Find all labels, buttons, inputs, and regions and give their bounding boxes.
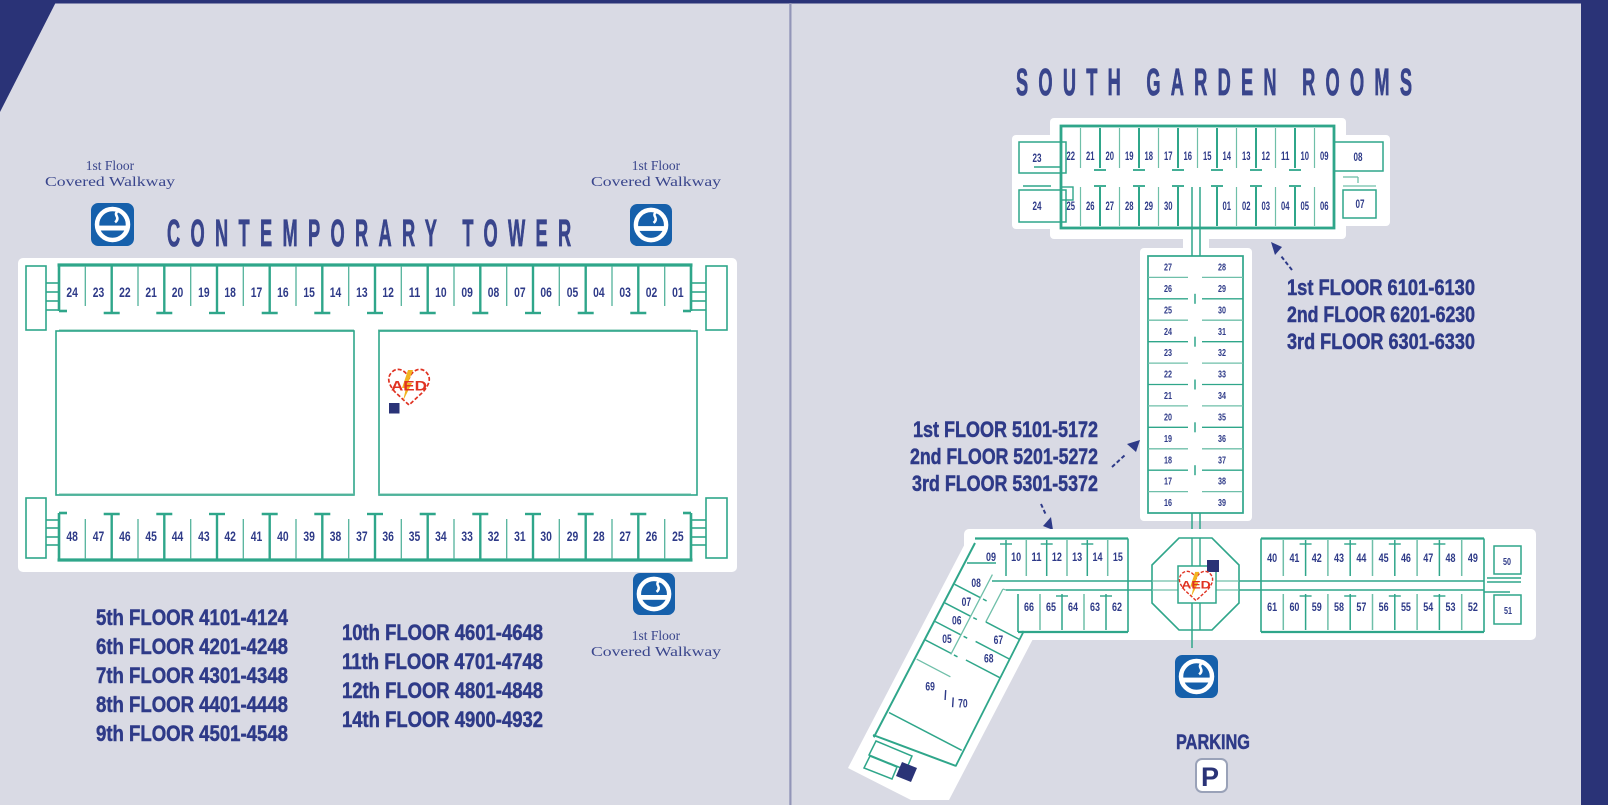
svg-text:52: 52 (1468, 600, 1478, 614)
svg-text:18: 18 (1145, 149, 1154, 163)
svg-text:06: 06 (952, 615, 962, 627)
svg-text:25: 25 (1067, 199, 1076, 213)
svg-text:08: 08 (1354, 150, 1363, 164)
svg-text:63: 63 (1090, 600, 1100, 614)
svg-text:18: 18 (1164, 454, 1172, 466)
svg-text:2nd FLOOR 6201-6230: 2nd FLOOR 6201-6230 (1287, 302, 1475, 327)
svg-text:3rd FLOOR 5301-5372: 3rd FLOOR 5301-5372 (912, 471, 1098, 496)
svg-text:22: 22 (1164, 369, 1172, 381)
svg-text:17: 17 (1164, 149, 1173, 163)
svg-text:12th FLOOR 4801-4848: 12th FLOOR 4801-4848 (342, 678, 543, 703)
svg-text:16: 16 (277, 285, 289, 300)
svg-text:AED: AED (391, 378, 427, 394)
svg-text:37: 37 (356, 529, 368, 544)
svg-text:14: 14 (1223, 149, 1232, 163)
svg-text:10th FLOOR 4601-4648: 10th FLOOR 4601-4648 (342, 620, 543, 645)
svg-text:16: 16 (1164, 497, 1172, 509)
svg-text:60: 60 (1289, 600, 1299, 614)
svg-text:47: 47 (93, 529, 105, 544)
svg-text:57: 57 (1356, 600, 1366, 614)
svg-text:11: 11 (1281, 149, 1290, 163)
svg-text:02: 02 (1242, 199, 1251, 213)
svg-text:54: 54 (1423, 600, 1433, 614)
svg-text:32: 32 (1218, 347, 1226, 359)
svg-text:07: 07 (514, 285, 526, 300)
svg-text:6th FLOOR 4201-4248: 6th FLOOR 4201-4248 (96, 634, 288, 659)
svg-text:30: 30 (1218, 304, 1226, 316)
svg-text:35: 35 (1218, 411, 1226, 423)
svg-text:35: 35 (409, 529, 421, 544)
svg-text:03: 03 (619, 285, 631, 300)
svg-text:12: 12 (1052, 550, 1062, 564)
svg-text:45: 45 (1379, 551, 1389, 565)
svg-text:14: 14 (330, 285, 342, 300)
svg-text:19: 19 (1125, 149, 1134, 163)
svg-text:06: 06 (540, 285, 552, 300)
svg-text:55: 55 (1401, 600, 1411, 614)
svg-text:38: 38 (1218, 476, 1226, 488)
svg-text:46: 46 (1401, 551, 1411, 565)
svg-text:14th FLOOR 4900-4932: 14th FLOOR 4900-4932 (342, 707, 543, 732)
svg-text:41: 41 (251, 529, 263, 544)
svg-text:1st FLOOR 5101-5172: 1st FLOOR 5101-5172 (913, 417, 1098, 442)
svg-text:45: 45 (145, 529, 157, 544)
svg-text:64: 64 (1068, 600, 1078, 614)
svg-text:13: 13 (1072, 550, 1082, 564)
svg-text:01: 01 (1223, 199, 1232, 213)
svg-text:30: 30 (540, 529, 552, 544)
svg-text:11: 11 (409, 285, 421, 300)
svg-text:20: 20 (1164, 411, 1172, 423)
svg-text:PARKING: PARKING (1176, 731, 1250, 754)
svg-text:43: 43 (1334, 551, 1344, 565)
svg-text:3rd FLOOR 6301-6330: 3rd FLOOR 6301-6330 (1287, 329, 1475, 354)
svg-text:07: 07 (962, 597, 972, 609)
svg-text:66: 66 (1024, 600, 1034, 614)
svg-text:26: 26 (1086, 199, 1095, 213)
svg-text:46: 46 (119, 529, 131, 544)
svg-text:48: 48 (1446, 551, 1456, 565)
svg-text:12: 12 (382, 285, 394, 300)
svg-text:23: 23 (1164, 347, 1172, 359)
svg-text:Covered Walkway: Covered Walkway (591, 644, 721, 659)
svg-text:Covered Walkway: Covered Walkway (45, 174, 175, 189)
svg-text:5th FLOOR 4101-4124: 5th FLOOR 4101-4124 (96, 605, 288, 630)
svg-text:21: 21 (145, 285, 157, 300)
svg-text:34: 34 (435, 529, 447, 544)
svg-text:62: 62 (1112, 600, 1122, 614)
svg-text:04: 04 (593, 285, 605, 300)
svg-text:49: 49 (1468, 551, 1478, 565)
svg-text:41: 41 (1289, 551, 1299, 565)
svg-text:1st Floor: 1st Floor (632, 158, 681, 173)
svg-text:27: 27 (1164, 262, 1172, 274)
svg-text:23: 23 (93, 285, 105, 300)
svg-text:39: 39 (1218, 497, 1226, 509)
svg-text:68: 68 (984, 654, 994, 666)
svg-text:44: 44 (1356, 551, 1366, 565)
svg-text:51: 51 (1504, 605, 1512, 617)
svg-text:16: 16 (1184, 149, 1193, 163)
svg-text:56: 56 (1379, 600, 1389, 614)
svg-text:26: 26 (646, 529, 658, 544)
svg-text:59: 59 (1312, 600, 1322, 614)
svg-text:42: 42 (1312, 551, 1322, 565)
svg-text:70: 70 (958, 699, 968, 711)
svg-text:30: 30 (1164, 199, 1173, 213)
svg-text:15: 15 (1113, 550, 1123, 564)
svg-text:42: 42 (224, 529, 236, 544)
svg-text:1st Floor: 1st Floor (632, 628, 681, 643)
svg-text:25: 25 (1164, 304, 1172, 316)
svg-text:1st Floor: 1st Floor (86, 158, 135, 173)
svg-text:21: 21 (1164, 390, 1172, 402)
svg-text:67: 67 (994, 635, 1004, 647)
svg-text:65: 65 (1046, 600, 1056, 614)
svg-text:20: 20 (172, 285, 184, 300)
svg-text:05: 05 (942, 634, 952, 646)
svg-text:05: 05 (567, 285, 579, 300)
svg-text:15: 15 (303, 285, 315, 300)
svg-text:06: 06 (1320, 199, 1329, 213)
svg-text:AED: AED (1181, 580, 1211, 592)
svg-text:19: 19 (198, 285, 210, 300)
svg-text:09: 09 (986, 550, 996, 564)
svg-text:29: 29 (1218, 283, 1226, 295)
svg-text:09: 09 (1320, 149, 1329, 163)
svg-text:58: 58 (1334, 600, 1344, 614)
svg-text:28: 28 (593, 529, 605, 544)
svg-text:10: 10 (1011, 550, 1021, 564)
svg-text:28: 28 (1125, 199, 1134, 213)
svg-text:33: 33 (1218, 369, 1226, 381)
svg-text:8th FLOOR 4401-4448: 8th FLOOR 4401-4448 (96, 692, 288, 717)
svg-text:02: 02 (646, 285, 658, 300)
svg-text:P: P (1201, 762, 1219, 792)
svg-text:27: 27 (619, 529, 631, 544)
svg-text:Covered Walkway: Covered Walkway (591, 174, 721, 189)
svg-text:19: 19 (1164, 433, 1172, 445)
svg-text:34: 34 (1218, 390, 1226, 402)
svg-text:24: 24 (1164, 326, 1172, 338)
svg-text:43: 43 (198, 529, 210, 544)
svg-text:39: 39 (303, 529, 315, 544)
svg-text:11th FLOOR 4701-4748: 11th FLOOR 4701-4748 (342, 649, 543, 674)
svg-text:11: 11 (1032, 550, 1042, 564)
svg-text:31: 31 (514, 529, 526, 544)
svg-text:27: 27 (1106, 199, 1115, 213)
svg-text:10: 10 (435, 285, 447, 300)
svg-text:07: 07 (1356, 197, 1365, 211)
svg-text:09: 09 (461, 285, 473, 300)
svg-text:47: 47 (1423, 551, 1433, 565)
svg-text:36: 36 (1218, 433, 1226, 445)
svg-text:23: 23 (1033, 151, 1042, 165)
svg-text:08: 08 (971, 578, 981, 590)
svg-text:40: 40 (1267, 551, 1277, 565)
svg-text:31: 31 (1218, 326, 1226, 338)
svg-text:38: 38 (330, 529, 342, 544)
svg-text:32: 32 (488, 529, 500, 544)
svg-text:40: 40 (277, 529, 289, 544)
svg-text:17: 17 (251, 285, 263, 300)
svg-text:7th FLOOR 4301-4348: 7th FLOOR 4301-4348 (96, 663, 288, 688)
svg-text:17: 17 (1164, 476, 1172, 488)
svg-text:22: 22 (119, 285, 131, 300)
svg-text:05: 05 (1301, 199, 1310, 213)
svg-text:69: 69 (925, 682, 935, 694)
svg-text:36: 36 (382, 529, 394, 544)
svg-text:29: 29 (1145, 199, 1154, 213)
svg-text:20: 20 (1106, 149, 1115, 163)
svg-text:14: 14 (1093, 550, 1103, 564)
svg-text:37: 37 (1218, 454, 1226, 466)
svg-text:22: 22 (1067, 149, 1076, 163)
svg-text:24: 24 (66, 285, 78, 300)
svg-text:61: 61 (1267, 600, 1277, 614)
svg-text:2nd FLOOR 5201-5272: 2nd FLOOR 5201-5272 (910, 444, 1098, 469)
svg-text:01: 01 (672, 285, 684, 300)
svg-text:13: 13 (1242, 149, 1251, 163)
svg-text:25: 25 (672, 529, 684, 544)
svg-text:44: 44 (172, 529, 184, 544)
svg-text:15: 15 (1203, 149, 1212, 163)
svg-text:29: 29 (567, 529, 579, 544)
svg-text:21: 21 (1086, 149, 1095, 163)
svg-text:1st FLOOR 6101-6130: 1st FLOOR 6101-6130 (1287, 275, 1475, 300)
svg-text:48: 48 (66, 529, 78, 544)
svg-text:08: 08 (488, 285, 500, 300)
svg-text:04: 04 (1281, 199, 1290, 213)
svg-text:50: 50 (1503, 556, 1511, 568)
svg-text:53: 53 (1446, 600, 1456, 614)
svg-text:03: 03 (1262, 199, 1271, 213)
svg-text:26: 26 (1164, 283, 1172, 295)
svg-text:9th FLOOR 4501-4548: 9th FLOOR 4501-4548 (96, 721, 288, 746)
svg-text:13: 13 (356, 285, 368, 300)
svg-text:10: 10 (1301, 149, 1310, 163)
svg-text:12: 12 (1262, 149, 1271, 163)
svg-text:28: 28 (1218, 262, 1226, 274)
svg-text:18: 18 (224, 285, 236, 300)
svg-text:33: 33 (461, 529, 473, 544)
svg-text:24: 24 (1033, 199, 1042, 213)
